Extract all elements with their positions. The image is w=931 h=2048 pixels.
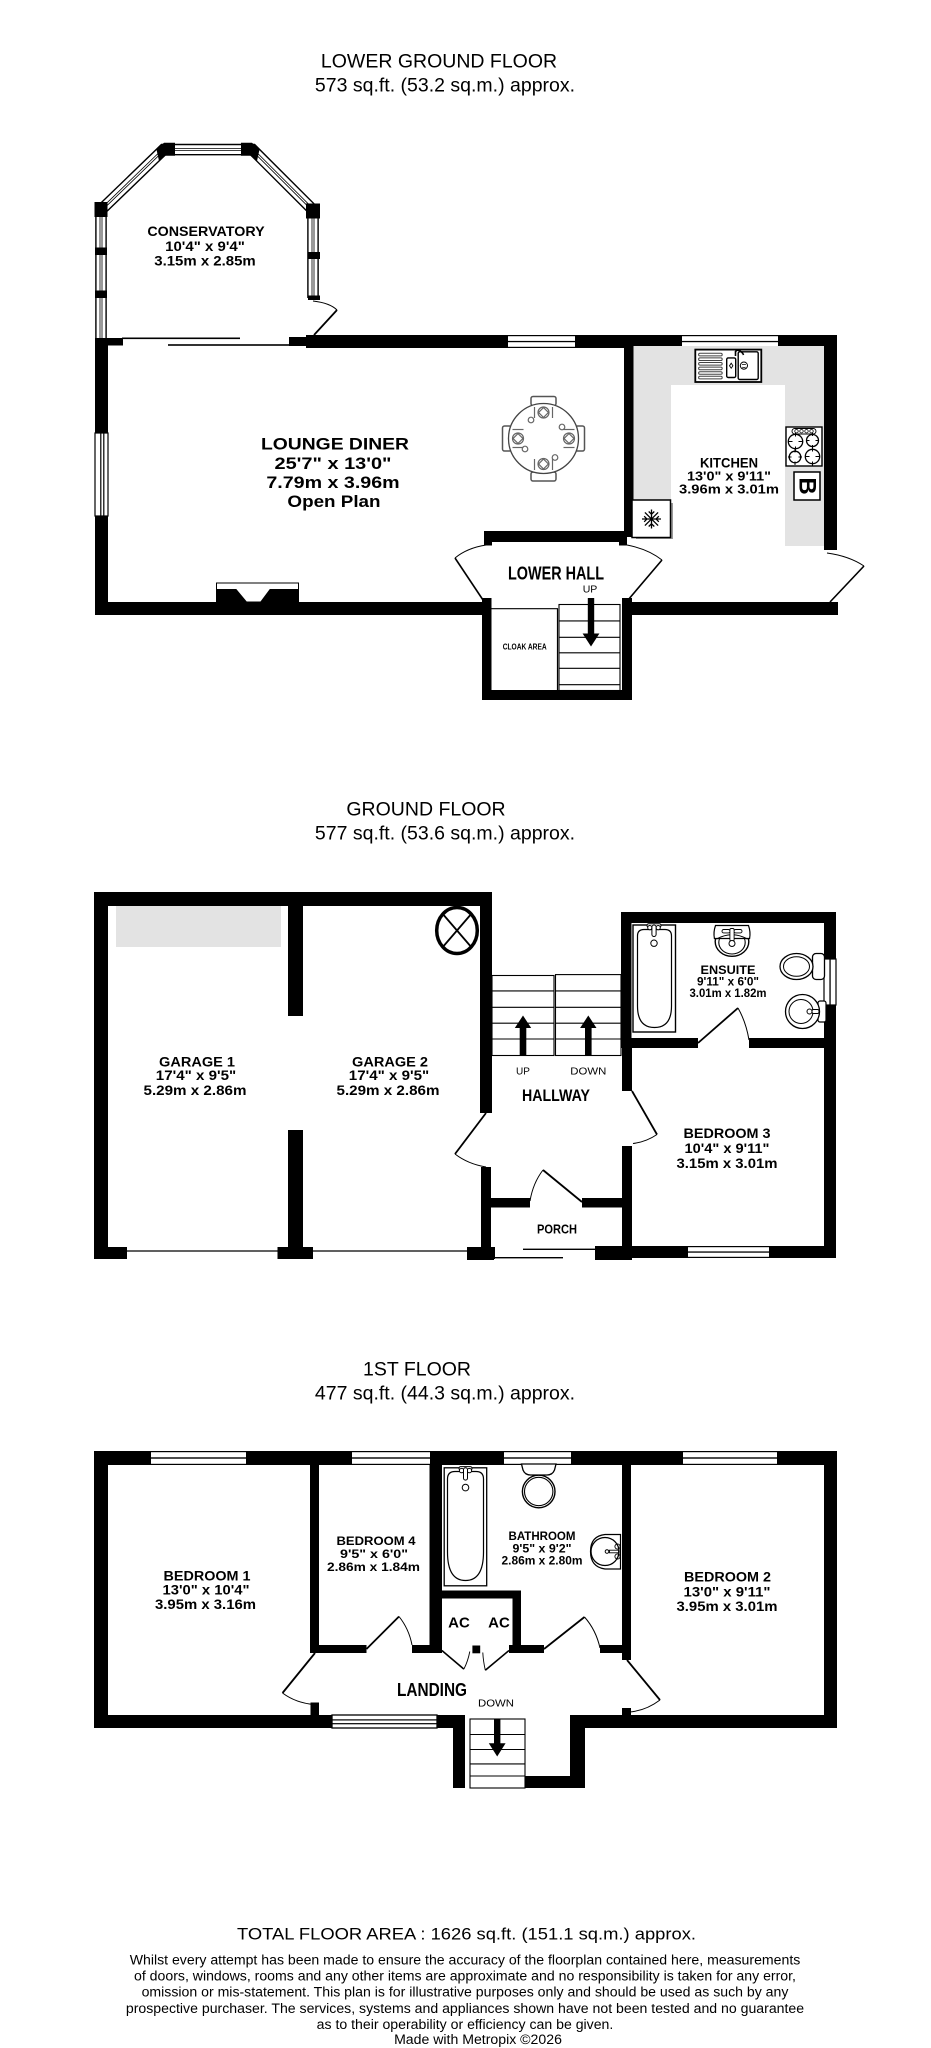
svg-text:Open Plan: Open Plan bbox=[287, 492, 380, 511]
svg-text:Whilst every attempt has been: Whilst every attempt has been made to en… bbox=[130, 1952, 801, 1968]
svg-text:3.15m x 3.01m: 3.15m x 3.01m bbox=[677, 1156, 778, 1171]
svg-text:UP: UP bbox=[583, 584, 598, 596]
svg-text:3.96m x 3.01m: 3.96m x 3.01m bbox=[679, 481, 779, 496]
svg-text:573 sq.ft. (53.2 sq.m.) approx: 573 sq.ft. (53.2 sq.m.) approx. bbox=[315, 75, 575, 97]
svg-text:3.95m x 3.01m: 3.95m x 3.01m bbox=[677, 1599, 778, 1614]
svg-text:DOWN: DOWN bbox=[570, 1067, 606, 1078]
svg-text:omission or mis-statement. Thi: omission or mis-statement. This plan is … bbox=[142, 1984, 790, 2000]
svg-text:25'7" x 13'0": 25'7" x 13'0" bbox=[275, 454, 392, 473]
svg-text:BEDROOM 2: BEDROOM 2 bbox=[684, 1570, 771, 1585]
svg-text:AC: AC bbox=[448, 1614, 470, 1631]
svg-text:prospective purchaser. The ser: prospective purchaser. The services, sys… bbox=[126, 2000, 804, 2016]
svg-text:BEDROOM 3: BEDROOM 3 bbox=[684, 1126, 772, 1141]
svg-text:3.15m x 2.85m: 3.15m x 2.85m bbox=[154, 254, 256, 269]
svg-text:CLOAK AREA: CLOAK AREA bbox=[503, 642, 547, 652]
svg-text:Made with Metropix ©2026: Made with Metropix ©2026 bbox=[394, 2031, 562, 2047]
svg-text:17'4" x 9'5": 17'4" x 9'5" bbox=[156, 1068, 236, 1083]
svg-text:9'5" x 6'0": 9'5" x 6'0" bbox=[340, 1547, 408, 1561]
svg-text:AC: AC bbox=[488, 1614, 510, 1631]
svg-text:9'11" x 6'0": 9'11" x 6'0" bbox=[697, 976, 759, 988]
svg-text:7.79m x 3.96m: 7.79m x 3.96m bbox=[266, 473, 399, 492]
svg-text:LANDING: LANDING bbox=[397, 1680, 467, 1700]
svg-text:13'0" x 10'4": 13'0" x 10'4" bbox=[163, 1583, 250, 1598]
svg-text:10'4" x 9'11": 10'4" x 9'11" bbox=[685, 1141, 770, 1156]
svg-text:17'4" x 9'5": 17'4" x 9'5" bbox=[349, 1068, 429, 1083]
svg-text:LOWER GROUND FLOOR: LOWER GROUND FLOOR bbox=[321, 51, 557, 73]
svg-text:CONSERVATORY: CONSERVATORY bbox=[147, 224, 264, 239]
svg-text:5.29m x 2.86m: 5.29m x 2.86m bbox=[337, 1083, 440, 1098]
svg-text:10'4" x 9'4": 10'4" x 9'4" bbox=[165, 239, 245, 254]
svg-text:2.86m x 1.84m: 2.86m x 1.84m bbox=[327, 1560, 420, 1574]
svg-text:B: B bbox=[794, 477, 821, 494]
svg-text:TOTAL FLOOR AREA : 1626 sq.ft.: TOTAL FLOOR AREA : 1626 sq.ft. (151.1 sq… bbox=[237, 1926, 696, 1944]
svg-text:PORCH: PORCH bbox=[537, 1222, 577, 1237]
svg-text:as to their operability or eff: as to their operability or efficiency ca… bbox=[317, 2016, 614, 2032]
svg-text:GROUND FLOOR: GROUND FLOOR bbox=[346, 799, 505, 821]
svg-text:LOWER HALL: LOWER HALL bbox=[508, 563, 604, 583]
svg-text:ENSUITE: ENSUITE bbox=[701, 965, 756, 977]
svg-text:577 sq.ft. (53.6 sq.m.) approx: 577 sq.ft. (53.6 sq.m.) approx. bbox=[315, 823, 575, 845]
svg-text:DOWN: DOWN bbox=[478, 1699, 514, 1710]
svg-text:2.86m x 2.80m: 2.86m x 2.80m bbox=[502, 1554, 583, 1568]
svg-text:BEDROOM 1: BEDROOM 1 bbox=[164, 1569, 252, 1584]
svg-text:of doors, windows, rooms and a: of doors, windows, rooms and any other i… bbox=[134, 1968, 796, 1984]
svg-text:1ST FLOOR: 1ST FLOOR bbox=[363, 1359, 471, 1381]
svg-text:477 sq.ft. (44.3 sq.m.) approx: 477 sq.ft. (44.3 sq.m.) approx. bbox=[315, 1383, 575, 1405]
svg-text:LOUNGE DINER: LOUNGE DINER bbox=[261, 434, 409, 453]
svg-text:HALLWAY: HALLWAY bbox=[522, 1086, 591, 1105]
svg-text:UP: UP bbox=[516, 1067, 530, 1078]
svg-text:13'0" x 9'11": 13'0" x 9'11" bbox=[684, 1585, 771, 1600]
svg-text:3.01m x 1.82m: 3.01m x 1.82m bbox=[690, 988, 767, 1000]
svg-text:3.95m x 3.16m: 3.95m x 3.16m bbox=[155, 1597, 256, 1612]
svg-text:5.29m x 2.86m: 5.29m x 2.86m bbox=[144, 1083, 247, 1098]
